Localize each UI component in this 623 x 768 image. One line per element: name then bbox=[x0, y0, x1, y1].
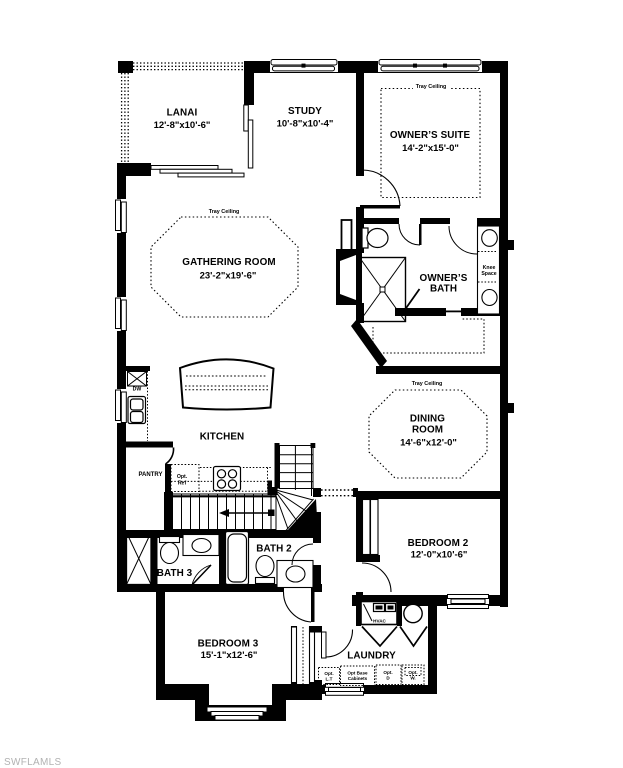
svg-text:HVAC: HVAC bbox=[373, 619, 386, 624]
svg-text:BATH: BATH bbox=[430, 284, 457, 295]
svg-text:Tray Ceiling: Tray Ceiling bbox=[412, 381, 443, 387]
svg-text:BATH 2: BATH 2 bbox=[256, 544, 292, 555]
svg-text:DW: DW bbox=[133, 387, 142, 393]
svg-text:GATHERING ROOM: GATHERING ROOM bbox=[182, 257, 275, 268]
svg-text:SWFLAMLS: SWFLAMLS bbox=[4, 757, 61, 768]
svg-text:Ref: Ref bbox=[178, 481, 187, 487]
svg-text:BEDROOM 3: BEDROOM 3 bbox=[198, 639, 259, 650]
svg-text:14'-2"x15'-0": 14'-2"x15'-0" bbox=[402, 143, 459, 154]
svg-text:12'-0"x10'-6": 12'-0"x10'-6" bbox=[411, 550, 468, 561]
svg-text:Cabinets: Cabinets bbox=[348, 676, 368, 681]
svg-text:Opt.: Opt. bbox=[383, 670, 392, 675]
svg-text:Opt.: Opt. bbox=[408, 670, 417, 675]
svg-text:BEDROOM 2: BEDROOM 2 bbox=[408, 538, 469, 549]
svg-text:Opt.: Opt. bbox=[324, 671, 333, 676]
svg-text:Opt.: Opt. bbox=[177, 474, 188, 480]
svg-text:23'-2"x19'-6": 23'-2"x19'-6" bbox=[200, 271, 257, 282]
svg-text:Tray Ceiling: Tray Ceiling bbox=[416, 84, 447, 90]
svg-text:KITCHEN: KITCHEN bbox=[200, 432, 245, 443]
svg-text:STUDY: STUDY bbox=[288, 106, 322, 117]
svg-text:10'-8"x10'-4": 10'-8"x10'-4" bbox=[277, 119, 334, 130]
svg-text:PANTRY: PANTRY bbox=[139, 472, 163, 478]
svg-text:Space: Space bbox=[481, 271, 496, 277]
svg-text:ROOM: ROOM bbox=[412, 425, 443, 436]
svg-text:Opt Base: Opt Base bbox=[347, 671, 368, 676]
svg-text:OWNER’S SUITE: OWNER’S SUITE bbox=[390, 130, 471, 141]
svg-text:12'-8"x10'-6": 12'-8"x10'-6" bbox=[154, 120, 211, 131]
svg-text:LAUNDRY: LAUNDRY bbox=[347, 651, 396, 662]
svg-text:LANAI: LANAI bbox=[167, 108, 198, 119]
svg-text:14'-6"x12'-0": 14'-6"x12'-0" bbox=[400, 438, 457, 449]
svg-text:DINING: DINING bbox=[410, 414, 445, 425]
svg-text:L.T: L.T bbox=[326, 677, 333, 682]
svg-text:Tray Ceiling: Tray Ceiling bbox=[209, 209, 240, 215]
svg-text:15'-1"x12'-6": 15'-1"x12'-6" bbox=[201, 650, 258, 661]
svg-text:BATH 3: BATH 3 bbox=[157, 568, 193, 579]
svg-text:W.: W. bbox=[410, 676, 415, 681]
svg-text:OWNER’S: OWNER’S bbox=[420, 273, 468, 284]
